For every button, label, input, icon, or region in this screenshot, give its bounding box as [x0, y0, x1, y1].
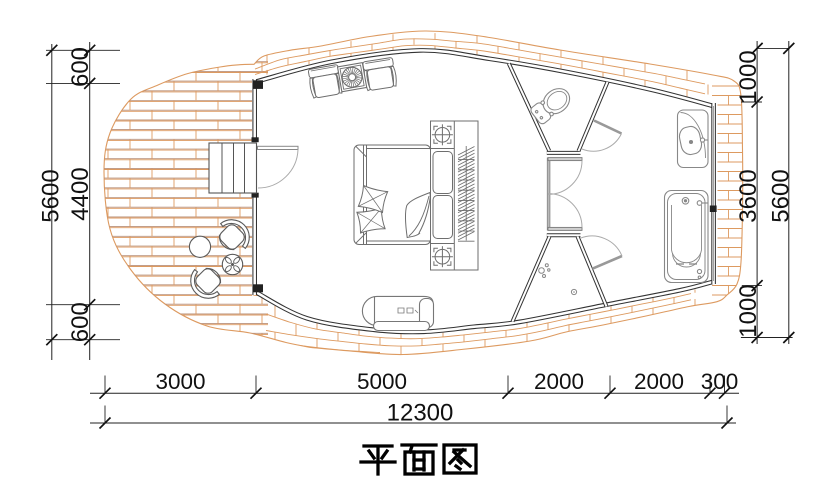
svg-text:5000: 5000	[357, 369, 407, 394]
svg-text:2000: 2000	[534, 369, 584, 394]
svg-text:1000: 1000	[735, 50, 762, 103]
svg-text:4400: 4400	[67, 167, 94, 220]
svg-text:300: 300	[701, 369, 739, 394]
svg-text:5600: 5600	[768, 169, 795, 222]
svg-text:5600: 5600	[38, 169, 65, 222]
svg-text:600: 600	[67, 47, 94, 87]
svg-text:600: 600	[67, 302, 94, 342]
svg-text:12300: 12300	[387, 400, 454, 427]
svg-text:2000: 2000	[634, 369, 684, 394]
svg-text:3600: 3600	[735, 169, 762, 222]
svg-text:3000: 3000	[155, 369, 205, 394]
svg-text:1000: 1000	[735, 284, 762, 337]
